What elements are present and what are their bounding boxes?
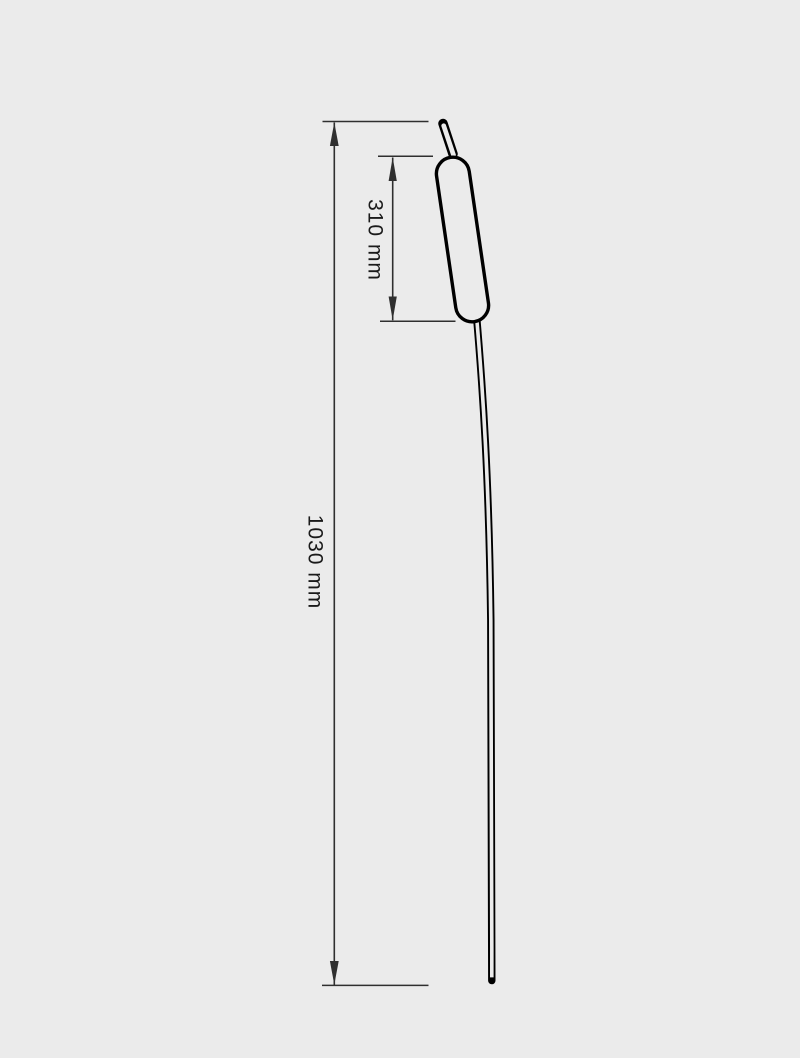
cattail-head xyxy=(434,155,491,324)
cattail-plant xyxy=(434,124,492,981)
arrowhead-up-icon xyxy=(389,157,397,181)
arrowhead-down-icon xyxy=(389,297,397,321)
dimension-label-overall: 1030 mm xyxy=(305,515,326,610)
arrowhead-up-icon xyxy=(330,122,339,146)
drawing-canvas: 1030 mm 310 mm xyxy=(0,0,800,1058)
cattail-figure xyxy=(0,0,800,1058)
arrowhead-down-icon xyxy=(330,961,339,985)
dimension-label-head: 310 mm xyxy=(365,199,386,281)
